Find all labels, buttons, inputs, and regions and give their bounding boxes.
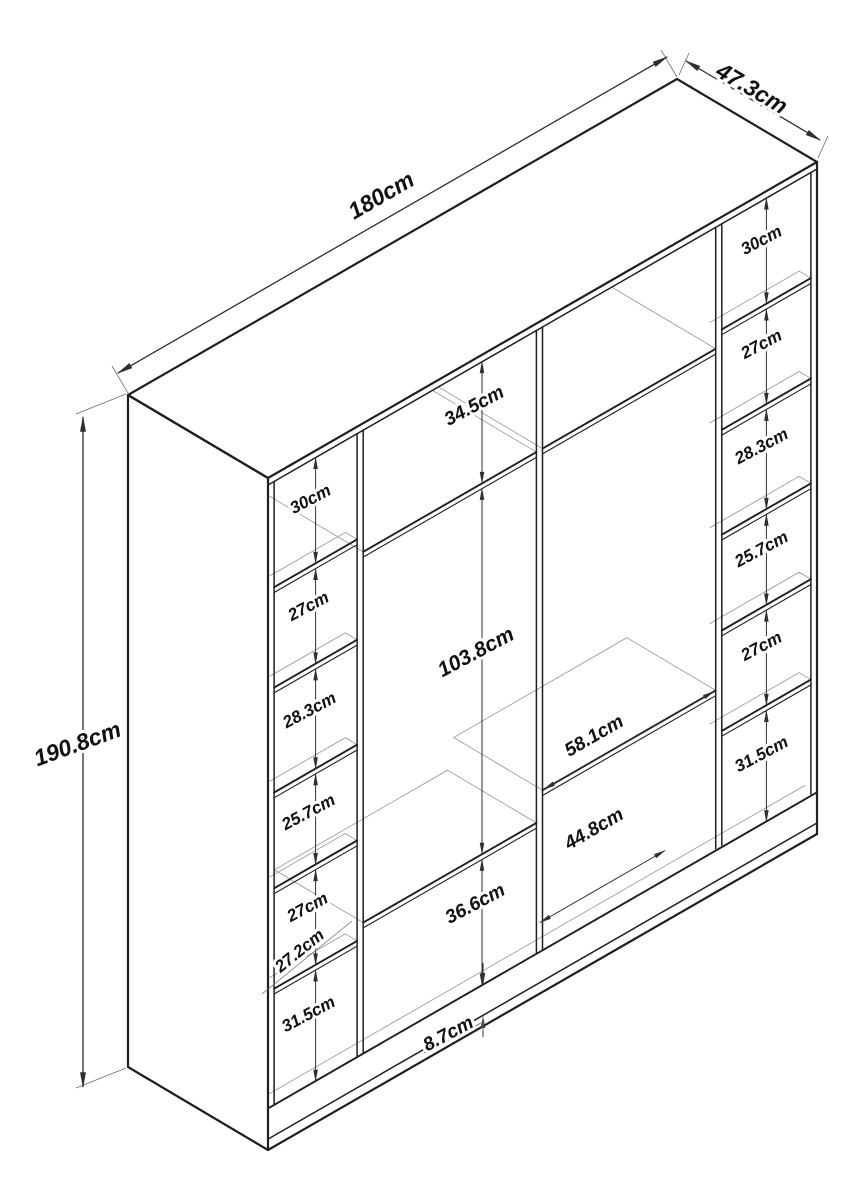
depth-hint-lines — [268, 271, 811, 1094]
wardrobe-dimension-diagram: 180cm 47.3cm 190.8cm 30cm 27cm 28.3cm 25… — [0, 0, 862, 1200]
height-label: 190.8cm — [30, 716, 124, 771]
right-compartment-2-label: 27cm — [737, 326, 785, 364]
right-compartment-4-label: 25.7cm — [731, 527, 792, 571]
left-compartment-1-label: 30cm — [287, 481, 334, 518]
left-compartment-5-label: 27cm — [283, 889, 331, 927]
base-height-label: 8.7cm — [420, 1012, 478, 1056]
right-compartment-6-label: 31.5cm — [731, 732, 791, 776]
left-side-face — [128, 395, 268, 1150]
shelf-width-label: 58.1cm — [561, 711, 627, 761]
width-dimension-line — [118, 57, 667, 373]
left-column-width-label: 27.2cm — [270, 925, 328, 977]
left-compartment-6-label: 31.5cm — [278, 992, 338, 1036]
left-compartment-2-label: 27cm — [284, 588, 332, 626]
dimension-labels: 180cm 47.3cm 190.8cm 30cm 27cm 28.3cm 25… — [30, 57, 792, 1056]
isometric-wardrobe-drawing: 180cm 47.3cm 190.8cm 30cm 27cm 28.3cm 25… — [0, 0, 862, 1200]
right-compartment-5-label: 27cm — [737, 628, 785, 666]
interior-structure — [268, 169, 817, 1139]
hanging-space-label: 103.8cm — [434, 623, 518, 682]
top-compartment-label: 34.5cm — [441, 382, 508, 431]
left-compartment-4-label: 25.7cm — [278, 790, 339, 834]
right-compartment-1-label: 30cm — [738, 222, 785, 259]
depth-label: 47.3cm — [711, 57, 792, 120]
left-compartment-3-label: 28.3cm — [279, 688, 340, 732]
bottom-width-dimension — [540, 851, 665, 923]
width-label: 180cm — [343, 166, 418, 224]
bottom-width-label: 44.8cm — [560, 804, 627, 855]
right-compartment-3-label: 28.3cm — [731, 424, 792, 468]
bottom-compartment-label: 36.6cm — [442, 880, 509, 929]
cabinet-outline — [128, 79, 817, 1150]
